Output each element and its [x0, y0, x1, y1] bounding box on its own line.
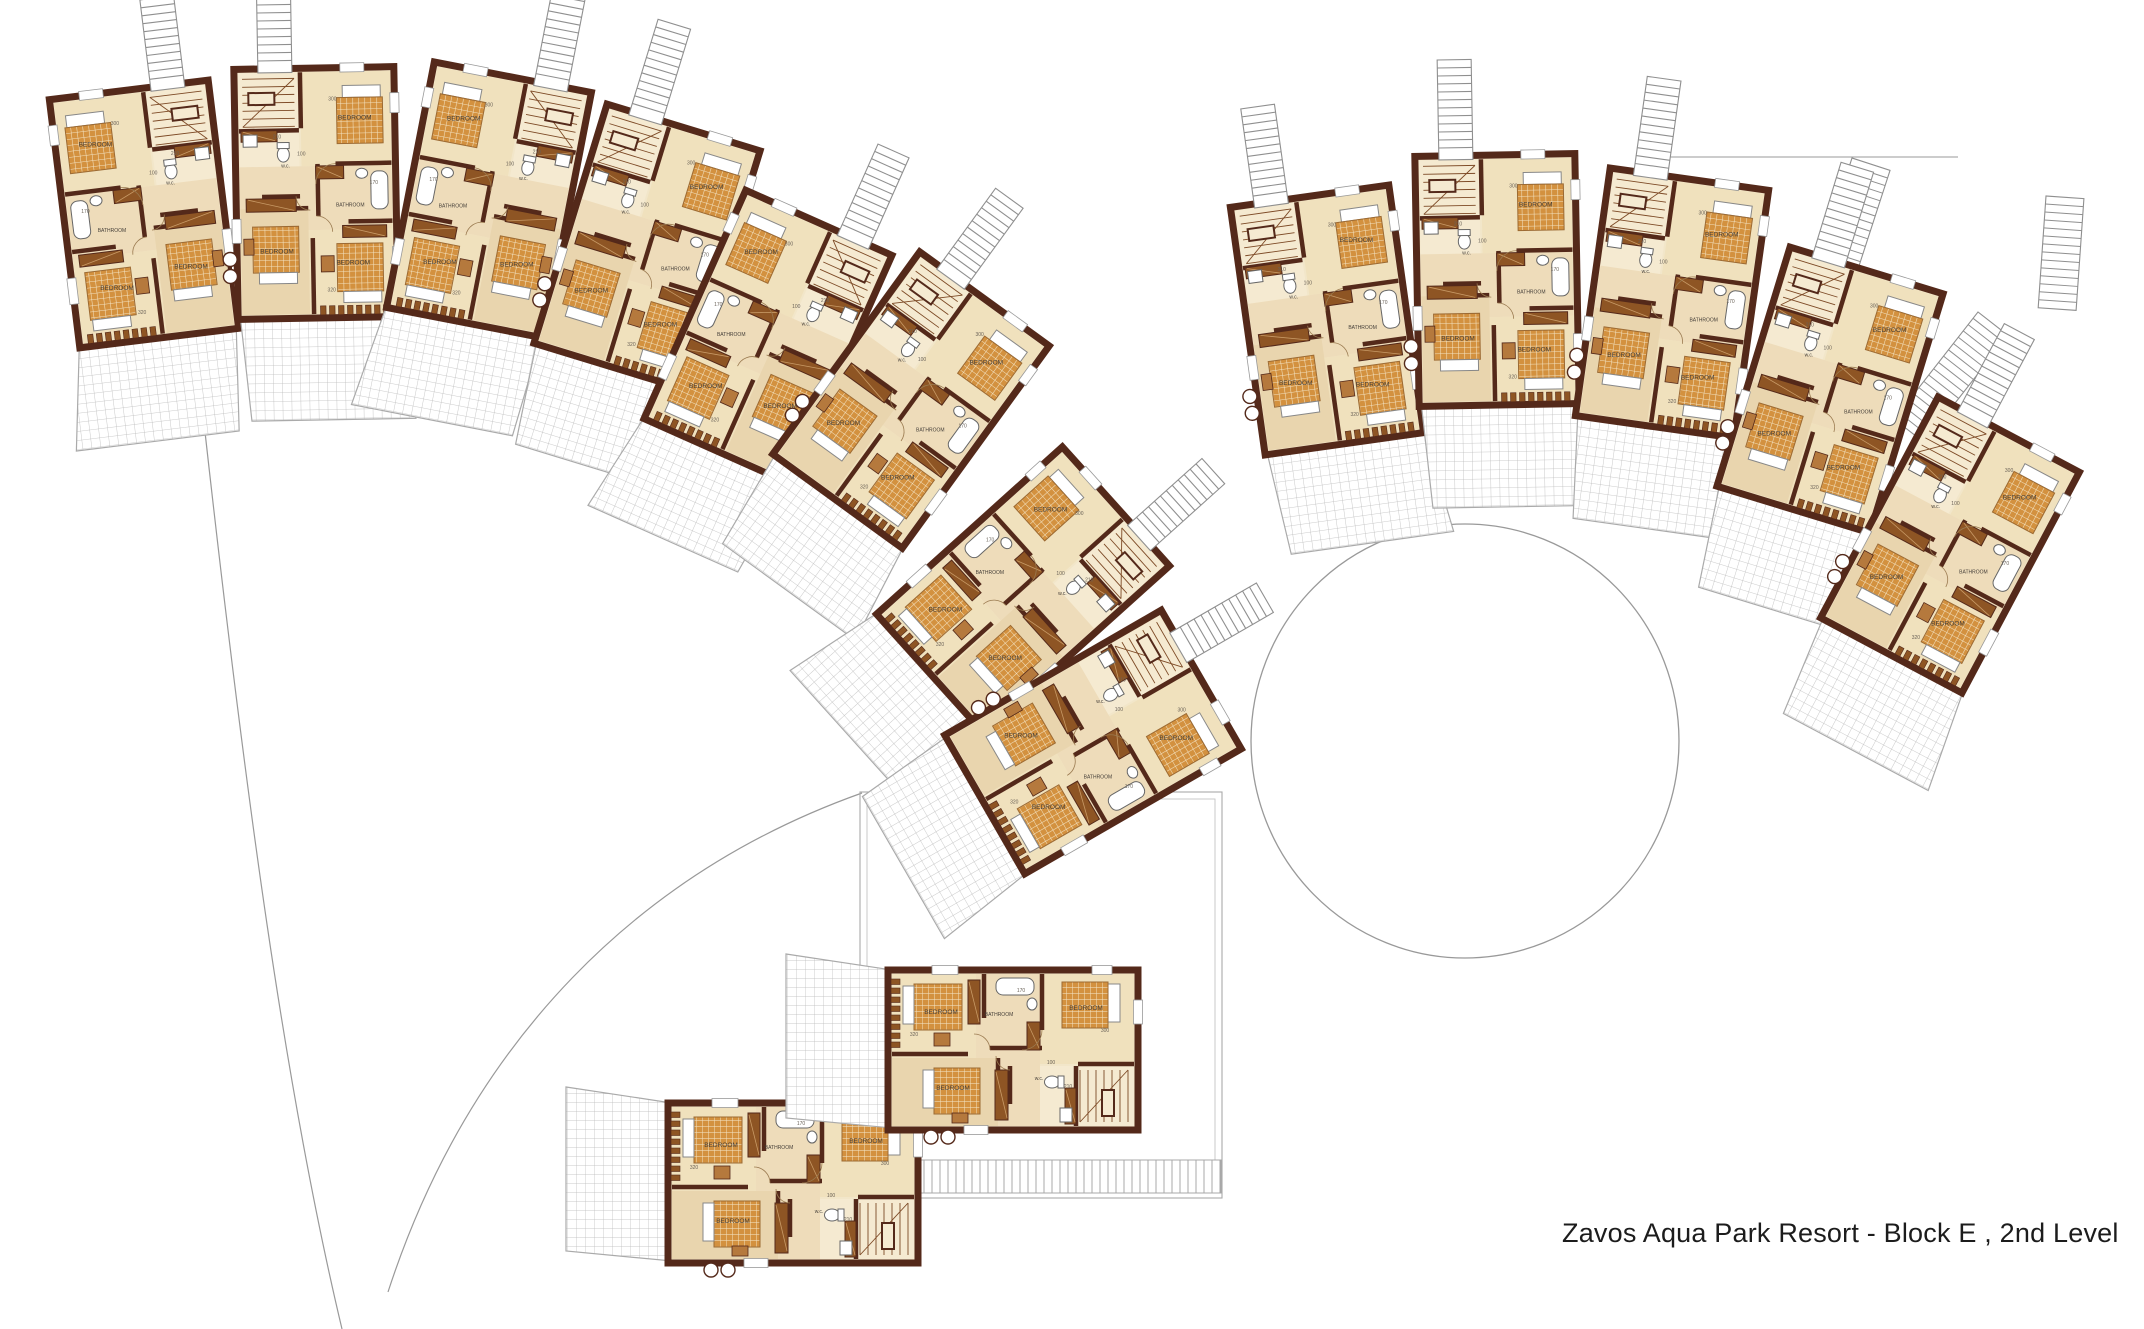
dim-d210-R4-3: 210	[1806, 322, 1815, 328]
label-bathroom-L8-3: BATHROOM	[1084, 774, 1113, 780]
label-bathroom-L4-3: BATHROOM	[661, 266, 690, 272]
dim-d170-L5-4: 170	[714, 302, 723, 308]
dim-d320-R1-2: 320	[1350, 412, 1359, 418]
dim-d320-R3-2: 320	[1668, 399, 1677, 405]
label-wc-L3-4: w.c.	[519, 176, 528, 182]
label-bedroom-L7-2: BEDROOM	[988, 655, 1022, 662]
dim-d300-R1-0: 300	[1328, 222, 1337, 228]
dim-d300-L8-0: 300	[1178, 708, 1187, 714]
label-bedroom-L1-2: BEDROOM	[174, 264, 208, 271]
unit-ladder-L3	[534, 0, 586, 92]
label-bedroom-B1-2: BEDROOM	[716, 1218, 750, 1225]
label-wc-L7-4: w.c.	[1058, 591, 1067, 597]
dim-d300-B2-0: 300	[1101, 1028, 1110, 1034]
dim-d300-L2-0: 300	[328, 97, 337, 103]
label-bedroom-R2-0: BEDROOM	[1519, 201, 1553, 208]
dim-d100-B1-1: 100	[827, 1193, 836, 1199]
label-wc-L4-4: w.c.	[622, 209, 631, 215]
dim-d300-R3-0: 300	[1698, 210, 1707, 216]
dim-d320-L3-2: 320	[452, 291, 461, 297]
unit-ladder-L5	[837, 144, 909, 249]
dim-d210-R1-3: 210	[1278, 267, 1287, 273]
label-bathroom-R5-3: BATHROOM	[1959, 569, 1988, 575]
dim-d300-L5-0: 300	[785, 242, 794, 248]
label-wc-R3-4: w.c.	[1642, 269, 1651, 275]
label-bathroom-B2-3: BATHROOM	[985, 1012, 1014, 1018]
dim-d210-L6-3: 210	[908, 329, 917, 335]
dim-d170-R2-4: 170	[1551, 267, 1560, 273]
label-wc-R4-4: w.c.	[1805, 352, 1814, 358]
label-bedroom-L6-2: BEDROOM	[827, 420, 861, 427]
dim-d300-R2-0: 300	[1509, 184, 1518, 190]
dim-d210-L2-3: 210	[273, 135, 282, 141]
label-wc-L5-4: w.c.	[802, 321, 811, 327]
label-bedroom-L2-1: BEDROOM	[336, 259, 370, 266]
dim-d100-L2-1: 100	[297, 151, 306, 157]
label-wc-R5-4: w.c.	[1931, 504, 1940, 510]
dim-d320-L8-2: 320	[1010, 800, 1019, 806]
unit-B2	[786, 954, 1143, 1144]
dim-d320-B2-2: 320	[910, 1032, 919, 1038]
label-bedroom-L8-1: BEDROOM	[1032, 804, 1066, 811]
dim-d170-B2-4: 170	[1017, 988, 1026, 994]
dim-d100-R3-1: 100	[1659, 259, 1668, 265]
dim-d100-R4-1: 100	[1824, 346, 1833, 352]
label-bedroom-L1-1: BEDROOM	[100, 285, 134, 292]
dim-d100-L3-1: 100	[506, 161, 515, 167]
dim-d320-L6-2: 320	[860, 484, 869, 490]
site-path-0	[205, 432, 342, 1329]
label-wc-B2-4: w.c.	[1035, 1076, 1044, 1082]
label-bedroom-R4-2: BEDROOM	[1757, 431, 1791, 438]
label-bedroom-B2-0: BEDROOM	[1069, 1005, 1103, 1012]
label-bedroom-L5-0: BEDROOM	[744, 249, 778, 256]
dim-d100-L5-1: 100	[792, 304, 801, 310]
dim-d320-R4-2: 320	[1810, 485, 1819, 491]
label-bedroom-L6-1: BEDROOM	[881, 474, 915, 481]
dim-d300-L4-0: 300	[687, 160, 696, 166]
label-bedroom-L8-2: BEDROOM	[1004, 732, 1038, 739]
dim-d320-L4-2: 320	[627, 342, 636, 348]
dim-d320-L5-2: 320	[711, 418, 720, 424]
unit-ladder-L2	[256, 0, 292, 73]
unit-ladder-R2	[1437, 59, 1473, 160]
label-bedroom-L4-0: BEDROOM	[690, 184, 724, 191]
label-bedroom-R4-1: BEDROOM	[1827, 464, 1861, 471]
dim-d300-R5-0: 300	[2005, 468, 2014, 474]
dim-d210-R5-3: 210	[1938, 475, 1947, 481]
dim-d320-L1-2: 320	[138, 310, 147, 316]
dim-d100-R5-1: 100	[1951, 501, 1960, 507]
label-bedroom-R1-2: BEDROOM	[1279, 380, 1313, 387]
dim-d170-L7-4: 170	[986, 538, 995, 544]
label-bedroom-R3-1: BEDROOM	[1681, 374, 1715, 381]
dim-d100-L7-1: 100	[1056, 571, 1065, 577]
dim-d320-B1-2: 320	[690, 1165, 699, 1171]
label-bedroom-L8-0: BEDROOM	[1159, 735, 1193, 742]
label-bedroom-B1-1: BEDROOM	[704, 1142, 738, 1149]
dim-d320-R2-2: 320	[1509, 375, 1518, 381]
label-bedroom-L3-1: BEDROOM	[423, 259, 457, 266]
dim-d210-L3-3: 210	[533, 149, 542, 155]
label-bedroom-L5-1: BEDROOM	[689, 383, 723, 390]
label-bathroom-R3-3: BATHROOM	[1689, 318, 1718, 324]
dim-d170-L6-4: 170	[958, 424, 967, 430]
label-bedroom-B1-0: BEDROOM	[849, 1138, 883, 1145]
label-bedroom-R3-2: BEDROOM	[1607, 352, 1641, 359]
label-bedroom-R4-0: BEDROOM	[1873, 327, 1907, 334]
dim-d100-L1-1: 100	[149, 171, 158, 177]
label-bathroom-L7-3: BATHROOM	[976, 570, 1005, 576]
label-bathroom-B1-3: BATHROOM	[765, 1145, 794, 1151]
dim-d210-B2-3: 210	[1064, 1084, 1073, 1090]
label-bedroom-R5-2: BEDROOM	[1870, 574, 1904, 581]
dim-d300-R4-0: 300	[1870, 303, 1879, 309]
label-bedroom-L7-0: BEDROOM	[1034, 506, 1068, 513]
dim-d210-L5-3: 210	[821, 298, 830, 304]
unit-ladder-L6	[937, 188, 1023, 289]
label-bedroom-L4-2: BEDROOM	[574, 288, 608, 295]
dim-d210-L8-3: 210	[1117, 678, 1126, 684]
label-bathroom-L6-3: BATHROOM	[916, 427, 945, 433]
dim-d100-B2-1: 100	[1047, 1060, 1056, 1066]
site-stair-1	[2038, 196, 2084, 310]
dim-d100-L8-1: 100	[1115, 707, 1124, 713]
label-bedroom-R2-2: BEDROOM	[1441, 336, 1475, 343]
dim-d300-L3-0: 300	[485, 102, 494, 108]
unit-ladder-L1	[139, 0, 185, 91]
label-bedroom-L2-2: BEDROOM	[260, 249, 294, 256]
dim-d170-L1-4: 170	[81, 209, 90, 215]
label-bedroom-L2-0: BEDROOM	[338, 114, 372, 121]
label-bedroom-R3-0: BEDROOM	[1705, 231, 1739, 238]
dim-d210-B1-3: 210	[844, 1217, 853, 1223]
unit-R2	[1401, 149, 1597, 509]
label-bathroom-L5-3: BATHROOM	[717, 332, 746, 338]
label-wc-L6-4: w.c.	[898, 357, 907, 363]
dim-d170-L3-4: 170	[429, 177, 438, 183]
label-bedroom-R1-0: BEDROOM	[1340, 237, 1374, 244]
label-bedroom-R5-1: BEDROOM	[1931, 620, 1965, 627]
label-bedroom-B2-2: BEDROOM	[936, 1085, 970, 1092]
dim-d170-L8-4: 170	[1125, 784, 1134, 790]
floor-plan-page: BEDROOMBEDROOMBEDROOMBATHROOMw.c.3001003…	[0, 0, 2144, 1329]
dim-d320-R5-2: 320	[1912, 635, 1921, 641]
dim-d100-R1-1: 100	[1304, 280, 1313, 286]
railing-band-1	[903, 1160, 1221, 1193]
label-bathroom-R4-3: BATHROOM	[1844, 409, 1873, 415]
unit-ladder-L7	[1128, 458, 1225, 550]
dim-d300-L7-0: 300	[1075, 511, 1084, 517]
label-bedroom-L3-2: BEDROOM	[500, 262, 534, 269]
label-wc-R2-4: w.c.	[1462, 251, 1471, 257]
label-bedroom-R1-1: BEDROOM	[1356, 381, 1390, 388]
plaza-circle	[1251, 524, 1679, 958]
dim-d170-R5-4: 170	[2001, 561, 2010, 567]
dim-d300-L1-0: 300	[111, 121, 120, 127]
dim-d100-L4-1: 100	[641, 203, 650, 209]
label-bedroom-L7-1: BEDROOM	[929, 606, 963, 613]
label-bedroom-L4-1: BEDROOM	[644, 321, 678, 328]
dim-d300-B1-0: 300	[881, 1161, 890, 1167]
label-bedroom-R5-0: BEDROOM	[2003, 494, 2037, 501]
label-bedroom-R2-1: BEDROOM	[1517, 346, 1551, 353]
unit-ladder-L4	[629, 19, 691, 125]
label-bedroom-L1-0: BEDROOM	[79, 141, 113, 148]
plan-title: Zavos Aqua Park Resort - Block E , 2nd L…	[1562, 1218, 2119, 1249]
label-bedroom-L6-0: BEDROOM	[969, 359, 1003, 366]
floor-plan-drawing: BEDROOMBEDROOMBEDROOMBATHROOMw.c.3001003…	[0, 0, 2144, 1329]
label-bathroom-L1-3: BATHROOM	[98, 228, 127, 234]
dim-d170-L2-4: 170	[370, 180, 379, 186]
label-bathroom-R2-3: BATHROOM	[1517, 289, 1546, 295]
dim-d100-R2-1: 100	[1478, 238, 1487, 244]
dim-d320-L7-2: 320	[936, 642, 945, 648]
unit-ladder-L8	[1170, 583, 1274, 662]
unit-ladder-R3	[1633, 76, 1681, 180]
dim-d170-R1-4: 170	[1379, 300, 1388, 306]
dim-d210-R2-3: 210	[1454, 222, 1463, 228]
dim-d170-B1-4: 170	[797, 1121, 806, 1127]
label-wc-L8-4: w.c.	[1096, 699, 1105, 705]
dim-d100-L6-1: 100	[918, 357, 927, 363]
label-wc-L2-4: w.c.	[281, 164, 290, 170]
label-bedroom-B2-1: BEDROOM	[924, 1009, 958, 1016]
label-bathroom-L3-3: BATHROOM	[439, 203, 468, 209]
unit-ladder-R1	[1241, 104, 1289, 208]
dim-d210-L4-3: 210	[623, 179, 632, 185]
label-wc-L1-4: w.c.	[166, 181, 175, 187]
label-bathroom-L2-3: BATHROOM	[336, 202, 365, 208]
label-bedroom-L5-2: BEDROOM	[763, 403, 797, 410]
dim-d210-R3-3: 210	[1638, 239, 1647, 245]
dim-d300-L6-0: 300	[975, 332, 984, 338]
label-bedroom-L3-0: BEDROOM	[447, 116, 481, 123]
label-wc-R1-4: w.c.	[1289, 294, 1298, 300]
dim-d210-L7-3: 210	[1085, 577, 1094, 583]
dim-d170-R4-4: 170	[1884, 395, 1893, 401]
dim-d170-R3-4: 170	[1726, 299, 1735, 305]
dim-d210-L1-3: 210	[171, 151, 180, 157]
dim-d170-L4-4: 170	[701, 252, 710, 258]
label-wc-B1-4: w.c.	[815, 1209, 824, 1215]
label-bathroom-R1-3: BATHROOM	[1348, 325, 1377, 331]
dim-d320-L2-2: 320	[328, 288, 337, 294]
